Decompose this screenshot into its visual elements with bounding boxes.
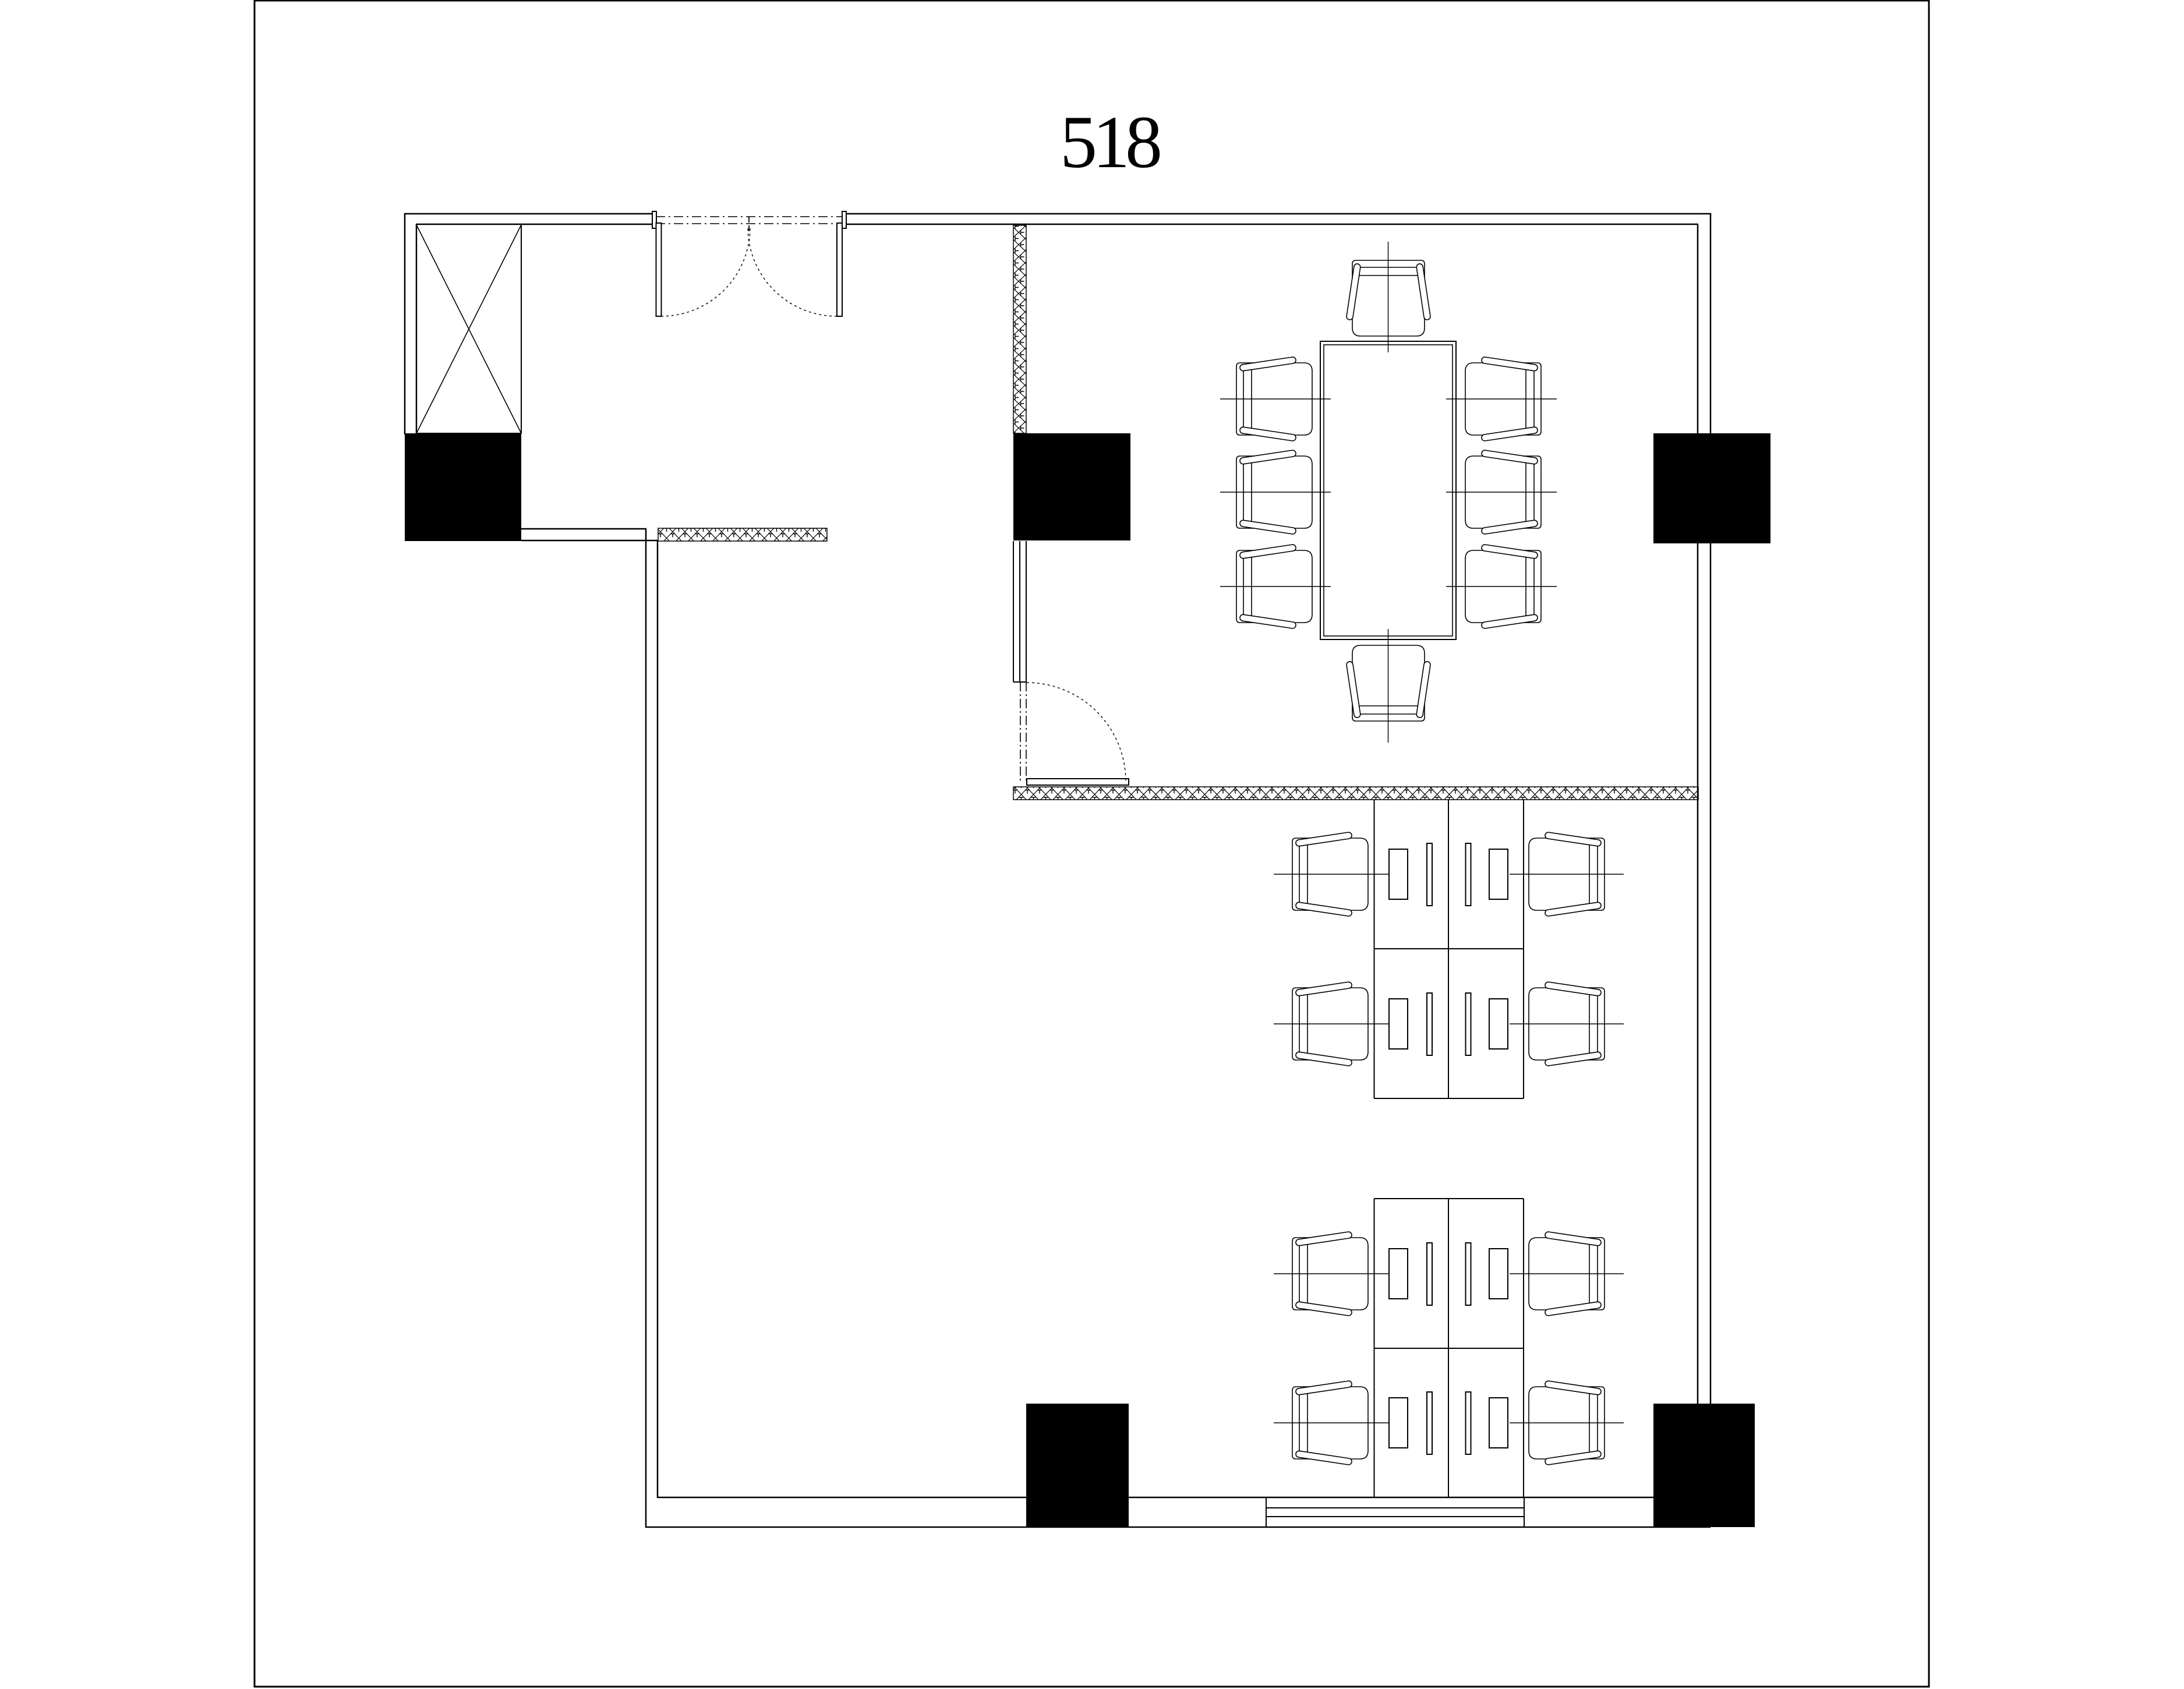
svg-text:518: 518 <box>1060 101 1160 183</box>
